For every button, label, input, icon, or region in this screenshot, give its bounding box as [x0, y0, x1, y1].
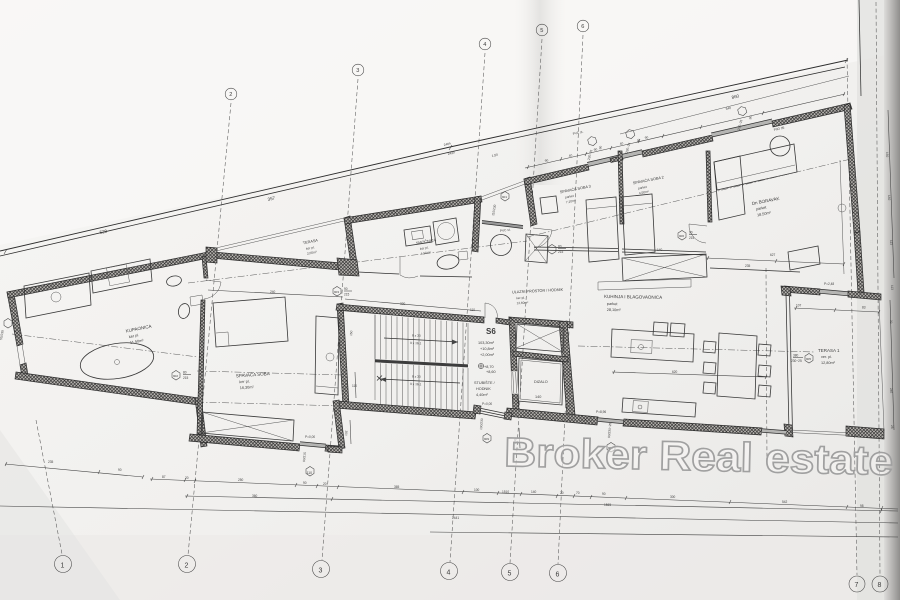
- svg-text:140: 140: [531, 490, 537, 494]
- svg-text:380: 380: [793, 354, 799, 358]
- svg-text:620: 620: [672, 370, 678, 374]
- svg-text:90: 90: [602, 492, 606, 496]
- svg-text:TERASA 1: TERASA 1: [818, 348, 840, 353]
- svg-text:P=0,00: P=0,00: [482, 402, 492, 406]
- svg-text:ker pl.: ker pl.: [239, 379, 250, 384]
- svg-text:12,60m²: 12,60m²: [516, 301, 528, 306]
- svg-text:90: 90: [118, 468, 122, 472]
- svg-text:87: 87: [162, 475, 166, 479]
- svg-text:Broker Real estate: Broker Real estate: [504, 429, 894, 484]
- svg-text:230~25: 230~25: [791, 359, 802, 363]
- svg-text:542: 542: [782, 500, 788, 504]
- svg-text:8 x 30: 8 x 30: [412, 375, 421, 379]
- svg-text:83: 83: [862, 306, 866, 310]
- svg-text:245: 245: [889, 388, 893, 394]
- svg-text:20: 20: [185, 476, 189, 480]
- svg-text:ver. pl.: ver. pl.: [821, 355, 832, 359]
- svg-text:+10,8m²: +10,8m²: [480, 347, 495, 351]
- svg-text:9 x 16,1: 9 x 16,1: [410, 341, 422, 345]
- svg-text:1510: 1510: [502, 490, 509, 494]
- svg-text:DIZALO: DIZALO: [534, 380, 548, 384]
- svg-text:12,80m²: 12,80m²: [821, 361, 836, 365]
- svg-text:902: 902: [173, 374, 178, 378]
- svg-text:140: 140: [657, 248, 663, 252]
- svg-text:6: 6: [581, 24, 584, 30]
- svg-text:90: 90: [303, 481, 307, 485]
- svg-text:215: 215: [344, 293, 350, 297]
- svg-text:150: 150: [349, 330, 353, 336]
- svg-text:903: 903: [334, 290, 339, 294]
- svg-text:8: 8: [878, 582, 882, 589]
- svg-text:102: 102: [344, 430, 348, 436]
- svg-text:360: 360: [252, 494, 258, 498]
- svg-text:ker pl.: ker pl.: [516, 296, 525, 300]
- svg-text:906: 906: [679, 234, 684, 238]
- svg-text:627: 627: [770, 253, 776, 257]
- svg-text:2441: 2441: [452, 516, 459, 520]
- svg-text:215: 215: [183, 376, 189, 380]
- svg-text:2: 2: [185, 563, 189, 570]
- svg-text:901: 901: [502, 195, 507, 199]
- svg-text:1: 1: [61, 563, 65, 570]
- svg-text:905: 905: [806, 357, 811, 361]
- svg-text:3: 3: [356, 68, 359, 74]
- svg-text:7: 7: [855, 582, 859, 589]
- svg-text:P=8,96: P=8,96: [596, 410, 606, 414]
- svg-text:20: 20: [323, 482, 327, 486]
- svg-text:113: 113: [890, 285, 894, 291]
- svg-text:110: 110: [307, 471, 313, 475]
- svg-text:250: 250: [238, 478, 244, 482]
- svg-text:98: 98: [860, 504, 864, 508]
- svg-text:8 x 30: 8 x 30: [412, 334, 421, 338]
- svg-text:235: 235: [48, 460, 54, 464]
- svg-text:STUBIŠTE /: STUBIŠTE /: [474, 380, 496, 385]
- svg-text:3: 3: [319, 568, 323, 575]
- svg-text:S6: S6: [486, 327, 496, 336]
- svg-text:235: 235: [745, 264, 751, 268]
- svg-text:28: 28: [890, 425, 894, 429]
- svg-text:330: 330: [400, 302, 406, 306]
- svg-text:240: 240: [270, 290, 276, 294]
- svg-text:P=2,48: P=2,48: [824, 282, 834, 286]
- svg-text:80: 80: [183, 371, 187, 375]
- svg-text:2: 2: [229, 92, 232, 98]
- svg-text:909: 909: [484, 437, 489, 441]
- svg-text:5: 5: [508, 571, 512, 578]
- svg-text:1565: 1565: [604, 503, 611, 507]
- svg-text:+2,00m²: +2,00m²: [480, 353, 495, 357]
- svg-text:4: 4: [483, 42, 486, 48]
- svg-text:90: 90: [344, 287, 348, 291]
- svg-text:KUHINJA I BLAGOVAONICA: KUHINJA I BLAGOVAONICA: [604, 294, 662, 300]
- svg-text:215: 215: [558, 250, 564, 254]
- svg-text:365: 365: [394, 485, 400, 489]
- svg-text:HODNIK: HODNIK: [476, 387, 491, 391]
- svg-text:103,30m²: 103,30m²: [478, 341, 495, 345]
- svg-text:300: 300: [670, 495, 676, 499]
- svg-text:113: 113: [889, 240, 893, 246]
- svg-text:+8,60: +8,60: [486, 370, 496, 374]
- svg-text:+8,70: +8,70: [484, 365, 494, 369]
- svg-text:70: 70: [576, 491, 580, 495]
- svg-text:100: 100: [474, 488, 480, 492]
- svg-text:107: 107: [796, 304, 802, 308]
- svg-text:parket: parket: [607, 302, 619, 306]
- svg-text:9 x 16,1: 9 x 16,1: [410, 382, 422, 386]
- svg-text:160: 160: [885, 152, 889, 158]
- svg-text:110: 110: [470, 308, 475, 312]
- svg-text:P=0,00: P=0,00: [305, 435, 315, 439]
- svg-text:110: 110: [352, 384, 357, 388]
- svg-text:80: 80: [558, 245, 562, 249]
- svg-text:6: 6: [556, 572, 560, 579]
- svg-text:140: 140: [535, 395, 541, 399]
- svg-text:5: 5: [540, 28, 543, 34]
- svg-text:20: 20: [560, 491, 564, 495]
- svg-text:90: 90: [689, 231, 693, 235]
- svg-text:140: 140: [887, 195, 891, 201]
- svg-text:4: 4: [447, 570, 451, 577]
- svg-text:30: 30: [889, 320, 893, 324]
- svg-text:28,10m²: 28,10m²: [607, 308, 622, 312]
- svg-text:4,40m²: 4,40m²: [476, 393, 489, 397]
- svg-text:215: 215: [689, 236, 695, 240]
